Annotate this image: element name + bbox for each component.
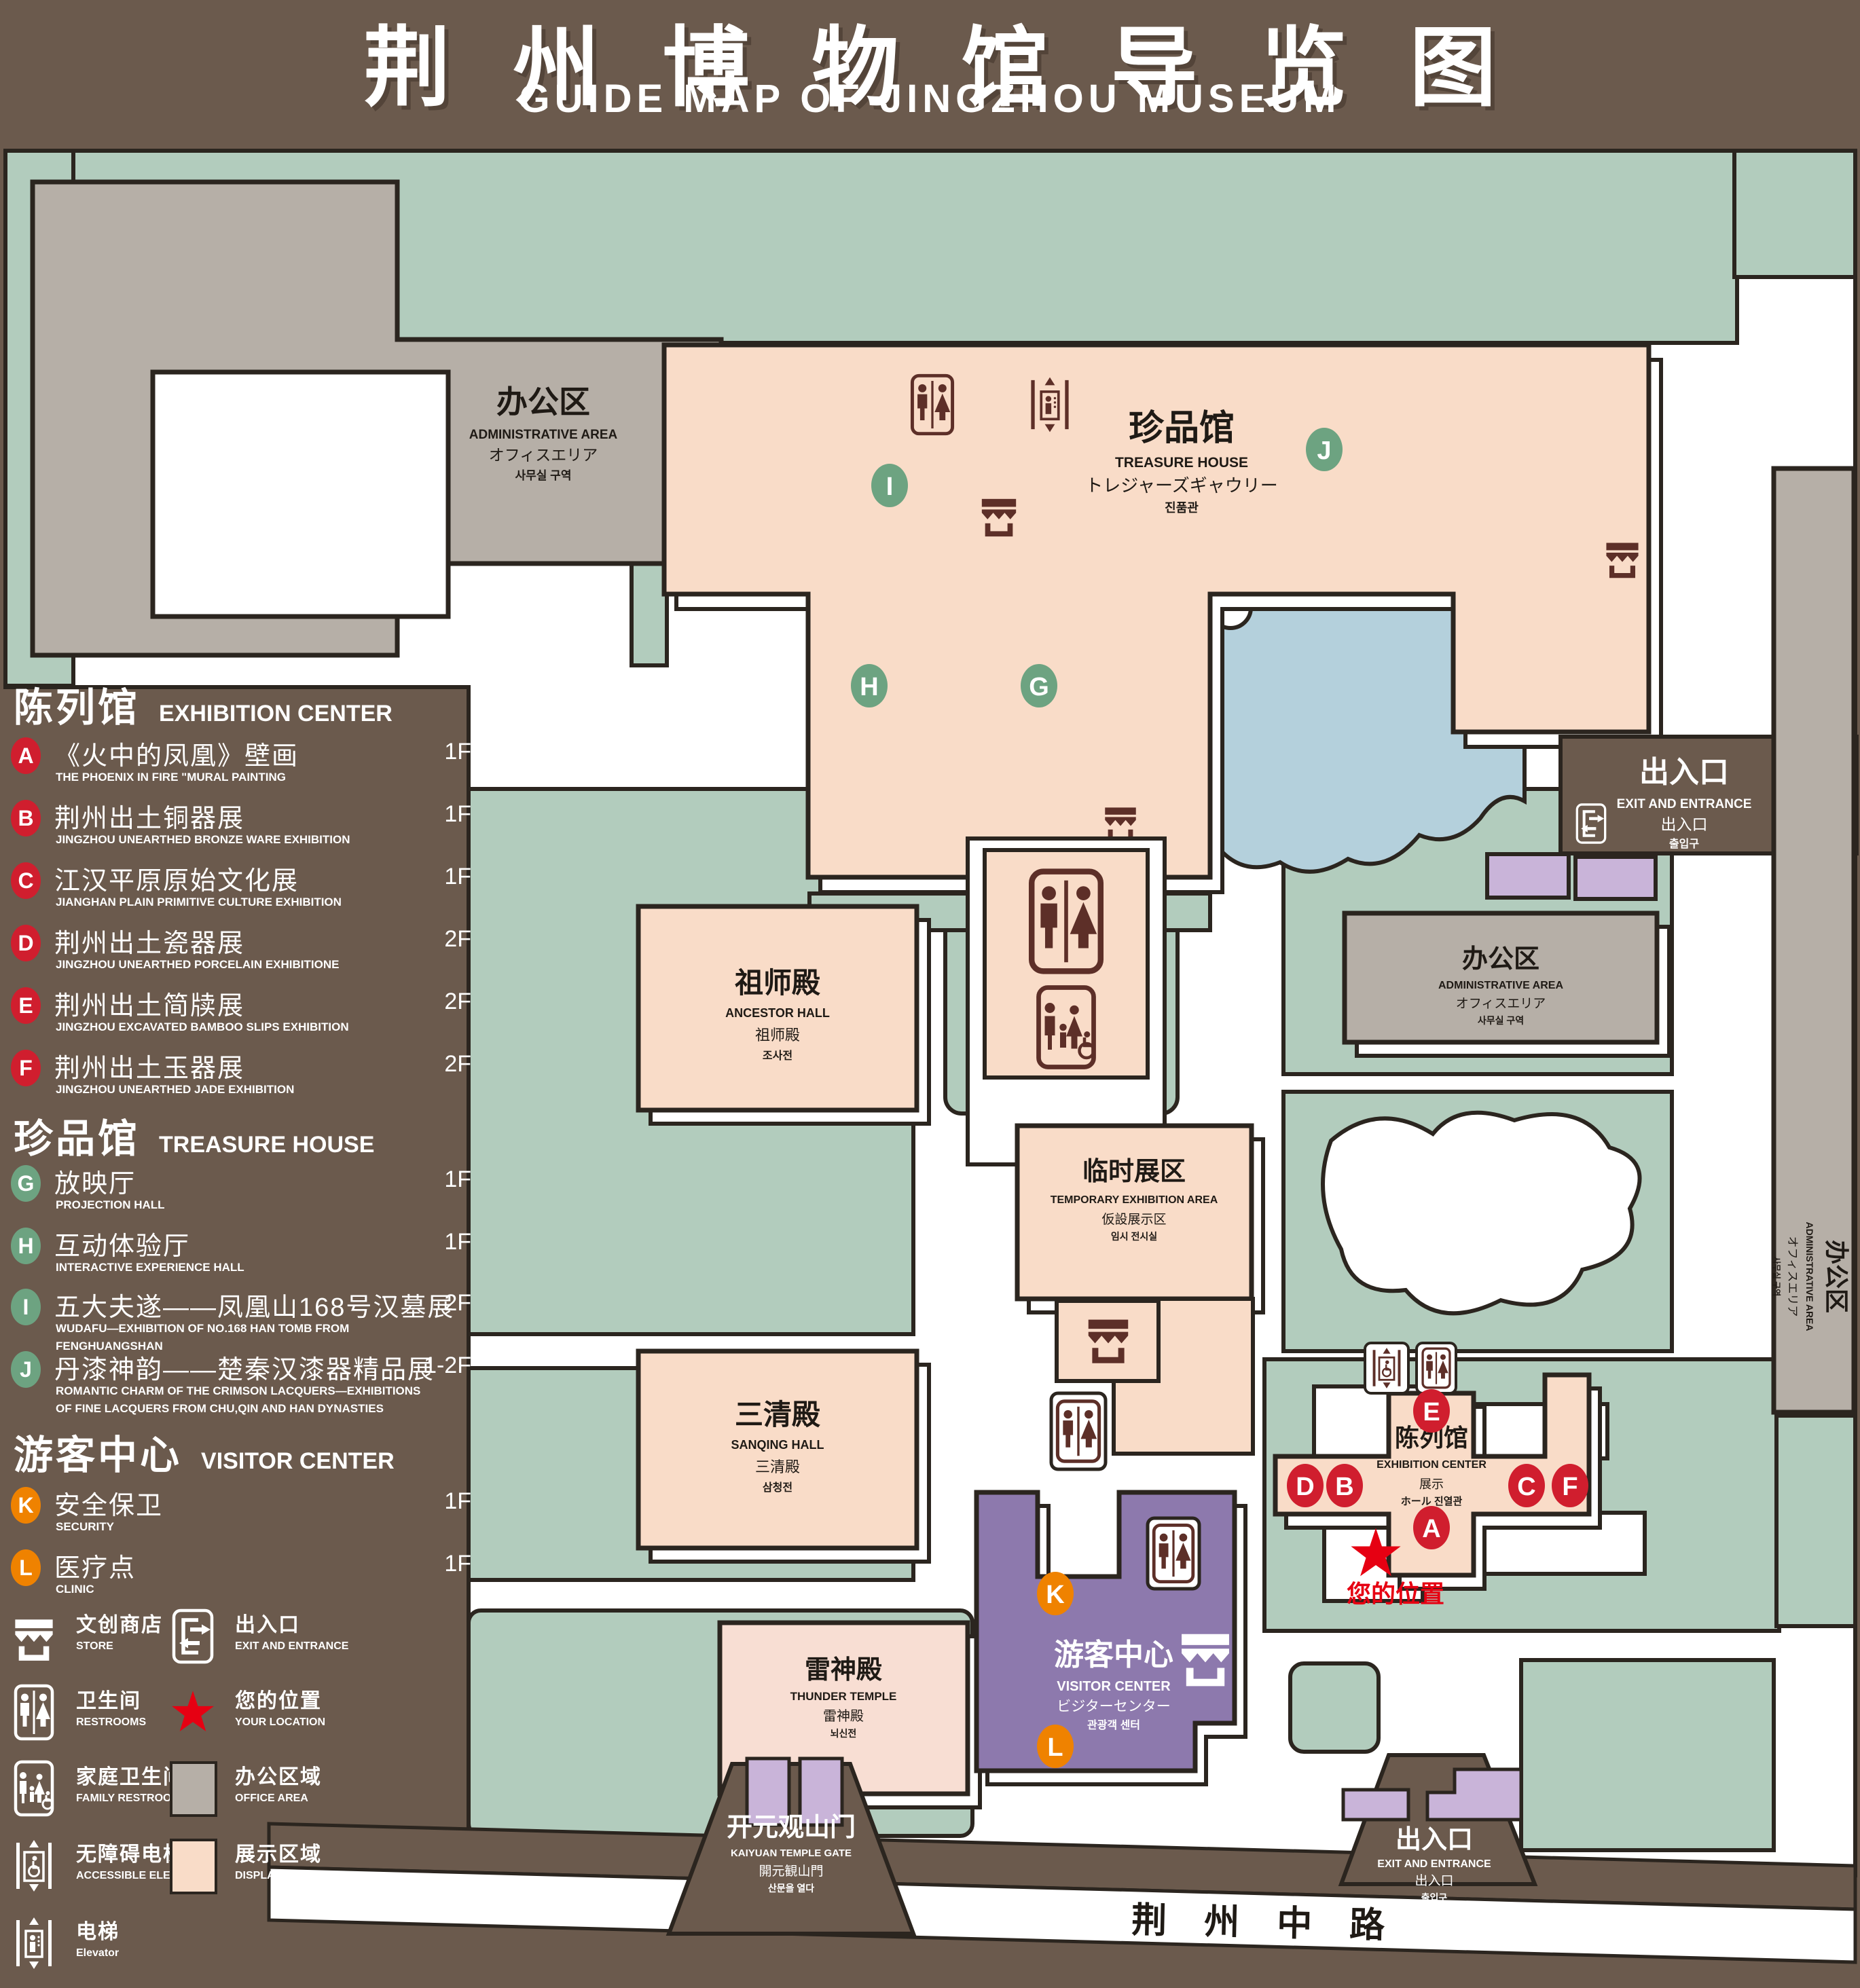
svg-text:C: C	[1517, 1473, 1535, 1501]
item-floor: 2F	[444, 1051, 471, 1078]
map-marker-a: A	[1413, 1506, 1450, 1549]
symbol-zh: 展示区域	[235, 1837, 322, 1867]
map-marker-e: E	[1413, 1389, 1450, 1433]
svg-text:TREASURE HOUSE: TREASURE HOUSE	[1115, 455, 1248, 471]
legend-item-d: D 荆州出土瓷器展 JINGZHOU UNEARTHED PORCELAIN E…	[10, 922, 471, 982]
map-marker-c: C	[1508, 1464, 1545, 1507]
symbol-en: YOUR LOCATION	[235, 1716, 325, 1729]
symbol-zh: 出入口	[235, 1608, 348, 1638]
svg-text:K: K	[1046, 1581, 1065, 1609]
legend-symbol-display-area: 展示区域 DISPLAY AREA	[170, 1837, 322, 1882]
legend-symbol-family-restrooms: 家庭卫生间 FAMILY RESTROOMS	[11, 1760, 187, 1805]
marker-badge: H	[11, 1228, 41, 1264]
item-floor: 1F	[444, 739, 471, 765]
guide-map-poster: { "title": {"zh": "荆州博物馆导览图", "en": "GUI…	[0, 0, 1860, 1988]
marker-badge: F	[11, 1050, 41, 1086]
svg-text:仮設展示区: 仮設展示区	[1101, 1212, 1166, 1227]
svg-text:사무실 구역: 사무실 구역	[1772, 1257, 1782, 1297]
svg-text:조사전: 조사전	[763, 1050, 792, 1062]
section-title-zh: 陈列馆	[14, 686, 140, 730]
legend-item-g: G 放映厅 PROJECTION HALL 1F	[10, 1162, 471, 1222]
accessible-elevator-icon	[11, 1837, 57, 1894]
item-en: JINGZHOU UNEARTHED JADE EXHIBITION	[56, 1081, 436, 1099]
legend-section-visitor-center: 游客中心VISITOR CENTER	[14, 1423, 475, 1480]
symbol-text: 办公区域 OFFICE AREA	[235, 1760, 322, 1805]
admin-courtyard	[153, 372, 448, 616]
item-floor: 2F	[444, 989, 471, 1015]
svg-text:ADMINISTRATIVE AREA: ADMINISTRATIVE AREA	[1438, 980, 1563, 991]
svg-text:EXIT AND ENTRANCE: EXIT AND ENTRANCE	[1377, 1858, 1491, 1870]
marker-badge: L	[11, 1549, 41, 1586]
svg-text:祖师殿: 祖师殿	[755, 1027, 800, 1044]
map-marker-j: J	[1306, 428, 1343, 471]
svg-text:출입구: 출입구	[1421, 1892, 1448, 1903]
map-marker-d: D	[1287, 1464, 1324, 1507]
marker-badge: A	[11, 737, 41, 774]
item-zh: 荆州出土简牍展	[54, 984, 244, 1022]
map-marker-i: I	[871, 464, 908, 507]
section-title-zh: 珍品馆	[14, 1117, 140, 1161]
your-location-label: 您的位置	[1347, 1580, 1444, 1608]
svg-text:游客中心: 游客中心	[1054, 1638, 1173, 1672]
item-floor: 2F	[444, 1290, 471, 1317]
map-marker-k: K	[1037, 1572, 1074, 1615]
symbol-en: Elevator	[76, 1947, 120, 1959]
exit-building-purple	[1343, 1790, 1408, 1820]
item-floor: 2F	[444, 926, 471, 953]
item-floor: 1F	[444, 864, 471, 890]
svg-text:산문을 열다: 산문을 열다	[768, 1883, 814, 1894]
symbol-zh: 文创商店	[76, 1608, 163, 1638]
section-title-zh: 游客中心	[14, 1433, 182, 1477]
svg-text:雷神殿: 雷神殿	[805, 1656, 882, 1685]
legend-item-e: E 荆州出土简牍展 JINGZHOU EXCAVATED BAMBOO SLIP…	[10, 984, 471, 1044]
legend-section-exhibition-center: 陈列馆EXHIBITION CENTER	[14, 676, 475, 733]
item-zh: 荆州出土玉器展	[54, 1047, 244, 1084]
svg-text:관광객 센터: 관광객 센터	[1087, 1718, 1140, 1731]
exit-building-purple	[1487, 854, 1569, 898]
item-zh: 互动体验厅	[54, 1225, 190, 1262]
svg-text:G: G	[1029, 673, 1049, 701]
marker-badge: C	[11, 862, 41, 899]
page-subtitle: GUIDE MAP OF JINGZHOU MUSEUM	[0, 76, 1860, 122]
svg-text:J: J	[1317, 437, 1331, 465]
svg-text:L: L	[1047, 1733, 1063, 1762]
marker-badge: G	[11, 1165, 41, 1202]
legend-symbol-store: 文创商店 STORE	[11, 1608, 163, 1653]
legend-item-h: H 互动体验厅 INTERACTIVE EXPERIENCE HALL 1F	[10, 1225, 471, 1285]
symbol-zh: 卫生间	[76, 1684, 146, 1714]
svg-text:B: B	[1335, 1473, 1353, 1501]
section-title-en: VISITOR CENTER	[201, 1448, 395, 1474]
legend-item-j: J 丹漆神韵——楚秦汉漆器精品展 ROMANTIC CHARM OF THE C…	[10, 1348, 471, 1430]
svg-text:KAIYUAN TEMPLE GATE: KAIYUAN TEMPLE GATE	[731, 1847, 852, 1859]
item-en: JINGZHOU UNEARTHED PORCELAIN EXHIBITIONE	[56, 956, 436, 974]
svg-text:진품관: 진품관	[1165, 501, 1199, 515]
symbol-text: 出入口 EXIT AND ENTRANCE	[235, 1608, 348, 1653]
item-floor: 1F	[444, 1551, 471, 1577]
item-en: SECURITY	[56, 1518, 436, 1536]
item-floor: 1F	[444, 1488, 471, 1515]
map-marker-h: H	[851, 664, 888, 707]
item-zh: 江汉平原原始文化展	[54, 860, 299, 897]
symbol-en: STORE	[76, 1640, 163, 1653]
svg-text:办公区: 办公区	[496, 384, 590, 420]
exit-icon	[170, 1608, 216, 1665]
family-restroom-icon	[11, 1760, 57, 1817]
lawn-right-low	[1776, 1416, 1855, 1626]
marker-badge: E	[11, 987, 41, 1024]
svg-text:삼청전: 삼청전	[763, 1481, 792, 1494]
lawn-bottom-right	[1521, 1660, 1774, 1850]
legend-item-b: B 荆州出土铜器展 JINGZHOU UNEARTHED BRONZE WARE…	[10, 797, 471, 857]
item-zh: 丹漆神韵——楚秦汉漆器精品展	[54, 1348, 435, 1386]
legend-item-i: I 五大夫遂——凤凰山168号汉墓展 WUDAFU—EXHIBITION OF …	[10, 1286, 471, 1346]
item-zh: 《火中的凤凰》壁画	[54, 735, 299, 772]
svg-text:출입구: 출입구	[1669, 838, 1699, 850]
marker-badge: D	[11, 925, 41, 961]
display-area-swatch	[170, 1839, 217, 1894]
item-en: JINGZHOU EXCAVATED BAMBOO SLIPS EXHIBITI…	[56, 1018, 436, 1036]
symbol-en: RESTROOMS	[76, 1716, 146, 1729]
legend-item-c: C 江汉平原原始文化展 JIANGHAN PLAIN PRIMITIVE CUL…	[10, 860, 471, 919]
svg-text:祖师殿: 祖师殿	[735, 967, 820, 999]
item-en: ROMANTIC CHARM OF THE CRIMSON LACQUERS—E…	[56, 1382, 436, 1418]
symbol-text: 卫生间 RESTROOMS	[76, 1684, 146, 1729]
legend-item-k: K 安全保卫 SECURITY 1F	[10, 1484, 471, 1544]
svg-text:EXIT AND ENTRANCE: EXIT AND ENTRANCE	[1617, 797, 1752, 811]
your-location-star-icon	[170, 1689, 216, 1734]
svg-text:EXHIBITION CENTER: EXHIBITION CENTER	[1376, 1459, 1487, 1471]
legend-section-treasure-house: 珍品馆TREASURE HOUSE	[14, 1107, 475, 1164]
svg-text:オフィスエリア: オフィスエリア	[1786, 1236, 1799, 1317]
legend-item-f: F 荆州出土玉器展 JINGZHOU UNEARTHED JADE EXHIBI…	[10, 1047, 471, 1107]
office-area-swatch	[170, 1761, 217, 1817]
svg-text:三清殿: 三清殿	[735, 1399, 820, 1431]
item-zh: 荆州出土瓷器展	[54, 922, 244, 959]
svg-text:雷神殿: 雷神殿	[823, 1708, 864, 1724]
item-en: THE PHOENIX IN FIRE "MURAL PAINTING	[56, 769, 436, 786]
legend-symbol-your-location: 您的位置 YOUR LOCATION	[170, 1684, 325, 1729]
item-floor: 1F	[444, 1229, 471, 1255]
item-en: INTERACTIVE EXPERIENCE HALL	[56, 1259, 436, 1276]
item-floor: 1-2F	[424, 1352, 471, 1379]
item-en: JINGZHOU UNEARTHED BRONZE WARE EXHIBITIO…	[56, 831, 436, 849]
item-floor: 1F	[444, 1166, 471, 1193]
map-marker-b: B	[1326, 1464, 1363, 1507]
svg-text:办公区: 办公区	[1823, 1240, 1850, 1313]
svg-text:뇌신전: 뇌신전	[831, 1728, 857, 1739]
item-floor: 1F	[444, 801, 471, 828]
svg-text:出入口: 出入口	[1639, 756, 1729, 789]
symbol-en: EXIT AND ENTRANCE	[235, 1640, 348, 1653]
section-title-en: TREASURE HOUSE	[159, 1132, 374, 1158]
svg-text:办公区: 办公区	[1462, 945, 1539, 974]
svg-text:临时展区: 临时展区	[1082, 1158, 1186, 1186]
item-en: PROJECTION HALL	[56, 1196, 436, 1214]
symbol-text: 展示区域 DISPLAY AREA	[235, 1837, 322, 1882]
svg-text:出入口: 出入口	[1415, 1873, 1453, 1888]
svg-text:ADMINISTRATIVE AREA: ADMINISTRATIVE AREA	[1804, 1222, 1815, 1331]
marker-badge: B	[11, 800, 41, 836]
symbol-en: OFFICE AREA	[235, 1792, 322, 1805]
svg-text:三清殿: 三清殿	[755, 1458, 800, 1475]
symbol-en: DISPLAY AREA	[235, 1870, 322, 1882]
svg-text:ホール 진열관: ホール 진열관	[1401, 1496, 1463, 1507]
map-marker-f: F	[1552, 1464, 1588, 1507]
symbol-zh: 办公区域	[235, 1760, 322, 1790]
svg-text:I: I	[886, 473, 894, 501]
svg-text:D: D	[1296, 1473, 1314, 1501]
symbol-zh: 电梯	[76, 1915, 120, 1945]
road-label: 荆州中路	[1131, 1901, 1423, 1947]
map-marker-g: G	[1021, 664, 1057, 707]
svg-text:珍品馆: 珍品馆	[1129, 409, 1235, 448]
svg-text:ビジターセンター: ビジターセンター	[1057, 1699, 1171, 1714]
lawn-top-right	[1734, 151, 1855, 277]
store-icon	[11, 1610, 57, 1668]
svg-text:H: H	[860, 673, 878, 701]
symbol-text: 电梯 Elevator	[76, 1915, 120, 1959]
svg-text:임시 전시실: 임시 전시실	[1111, 1231, 1157, 1242]
elevator-icon	[11, 1915, 57, 1972]
symbol-text: 您的位置 YOUR LOCATION	[235, 1684, 325, 1729]
legend-symbol-exit: 出入口 EXIT AND ENTRANCE	[170, 1608, 348, 1653]
svg-text:オフィスエリア: オフィスエリア	[489, 446, 598, 464]
svg-text:사무실 구역: 사무실 구역	[1478, 1015, 1524, 1026]
svg-text:SANQING HALL: SANQING HALL	[731, 1438, 824, 1452]
marker-badge: I	[11, 1289, 41, 1325]
legend-item-l: L 医疗点 CLINIC 1F	[10, 1547, 471, 1606]
item-en: CLINIC	[56, 1581, 436, 1598]
section-title-en: EXHIBITION CENTER	[159, 701, 393, 726]
svg-text:展示: 展示	[1419, 1477, 1444, 1491]
legend-symbol-elevator: 电梯 Elevator	[11, 1915, 120, 1959]
item-zh: 五大夫遂——凤凰山168号汉墓展	[54, 1286, 454, 1323]
svg-text:THUNDER TEMPLE: THUNDER TEMPLE	[790, 1690, 897, 1703]
svg-text:F: F	[1562, 1473, 1578, 1501]
marker-badge: J	[11, 1351, 41, 1388]
legend-symbol-restrooms: 卫生间 RESTROOMS	[11, 1684, 146, 1729]
svg-text:開元観山門: 開元観山門	[759, 1864, 823, 1879]
svg-text:开元观山门: 开元观山门	[727, 1814, 856, 1842]
symbol-text: 文创商店 STORE	[76, 1608, 163, 1653]
lawn-bottom-small	[1290, 1663, 1379, 1752]
svg-text:ADMINISTRATIVE AREA: ADMINISTRATIVE AREA	[469, 428, 618, 442]
svg-text:A: A	[1422, 1515, 1440, 1543]
item-zh: 荆州出土铜器展	[54, 797, 244, 834]
svg-text:オフィスエリア: オフィスエリア	[1456, 997, 1546, 1011]
symbol-zh: 您的位置	[235, 1684, 325, 1714]
svg-text:E: E	[1423, 1398, 1440, 1426]
item-zh: 安全保卫	[54, 1484, 163, 1522]
item-zh: 放映厅	[54, 1162, 136, 1200]
map-marker-l: L	[1037, 1725, 1074, 1768]
svg-text:VISITOR CENTER: VISITOR CENTER	[1057, 1679, 1171, 1694]
restroom-icon	[11, 1684, 57, 1741]
svg-text:사무실 구역: 사무실 구역	[515, 469, 572, 482]
item-zh: 医疗点	[54, 1547, 136, 1584]
exit-building-purple	[1575, 857, 1656, 899]
legend-symbol-office-area: 办公区域 OFFICE AREA	[170, 1760, 322, 1805]
svg-text:トレジャーズギャウリー: トレジャーズギャウリー	[1085, 475, 1277, 496]
svg-text:出入口: 出入口	[1396, 1826, 1473, 1854]
svg-text:TEMPORARY EXHIBITION AREA: TEMPORARY EXHIBITION AREA	[1051, 1194, 1218, 1206]
item-en: JIANGHAN PLAIN PRIMITIVE CULTURE EXHIBIT…	[56, 894, 436, 911]
marker-badge: K	[11, 1487, 41, 1524]
legend-item-a: A 《火中的凤凰》壁画 THE PHOENIX IN FIRE "MURAL P…	[10, 735, 471, 794]
svg-text:ANCESTOR HALL: ANCESTOR HALL	[725, 1006, 830, 1020]
svg-text:出入口: 出入口	[1661, 815, 1708, 833]
